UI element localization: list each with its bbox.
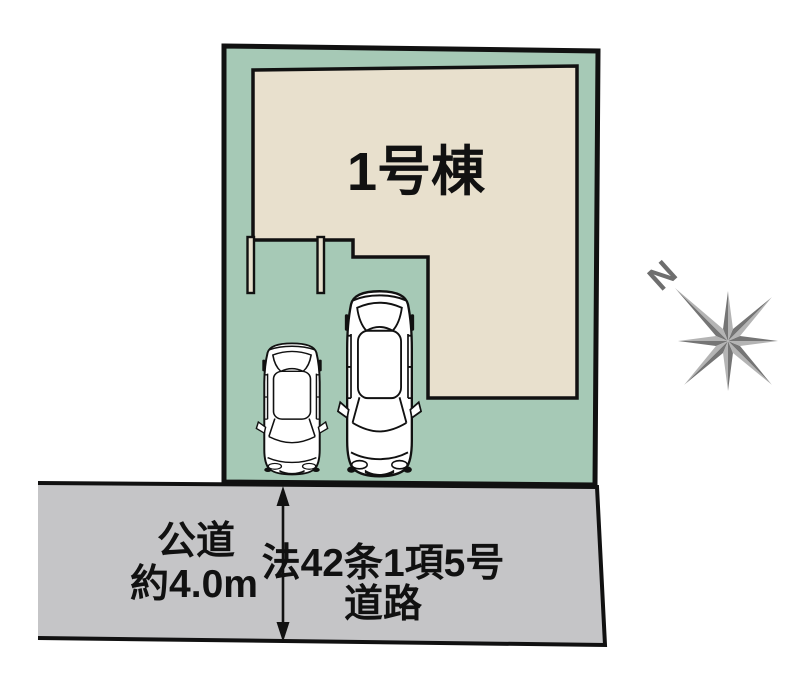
car-large: [338, 291, 421, 476]
road-name-line1: 法42条1項5号: [262, 542, 505, 585]
road-name-line2: 道路: [344, 583, 423, 626]
site-plan-page: 1号棟 公道 約4.0m 法42条1項5号 道路 N: [0, 0, 800, 677]
road-type-label: 公道: [157, 520, 235, 563]
car-small: [256, 343, 327, 474]
building-label: 1号棟: [347, 142, 486, 202]
compass-rose: N: [641, 253, 778, 391]
wall-strip-right: [318, 237, 325, 293]
road-width-label: 約4.0m: [130, 563, 258, 606]
site-plan-diagram: 1号棟 公道 約4.0m 法42条1項5号 道路 N: [0, 0, 800, 677]
wall-strip-left: [248, 237, 255, 293]
